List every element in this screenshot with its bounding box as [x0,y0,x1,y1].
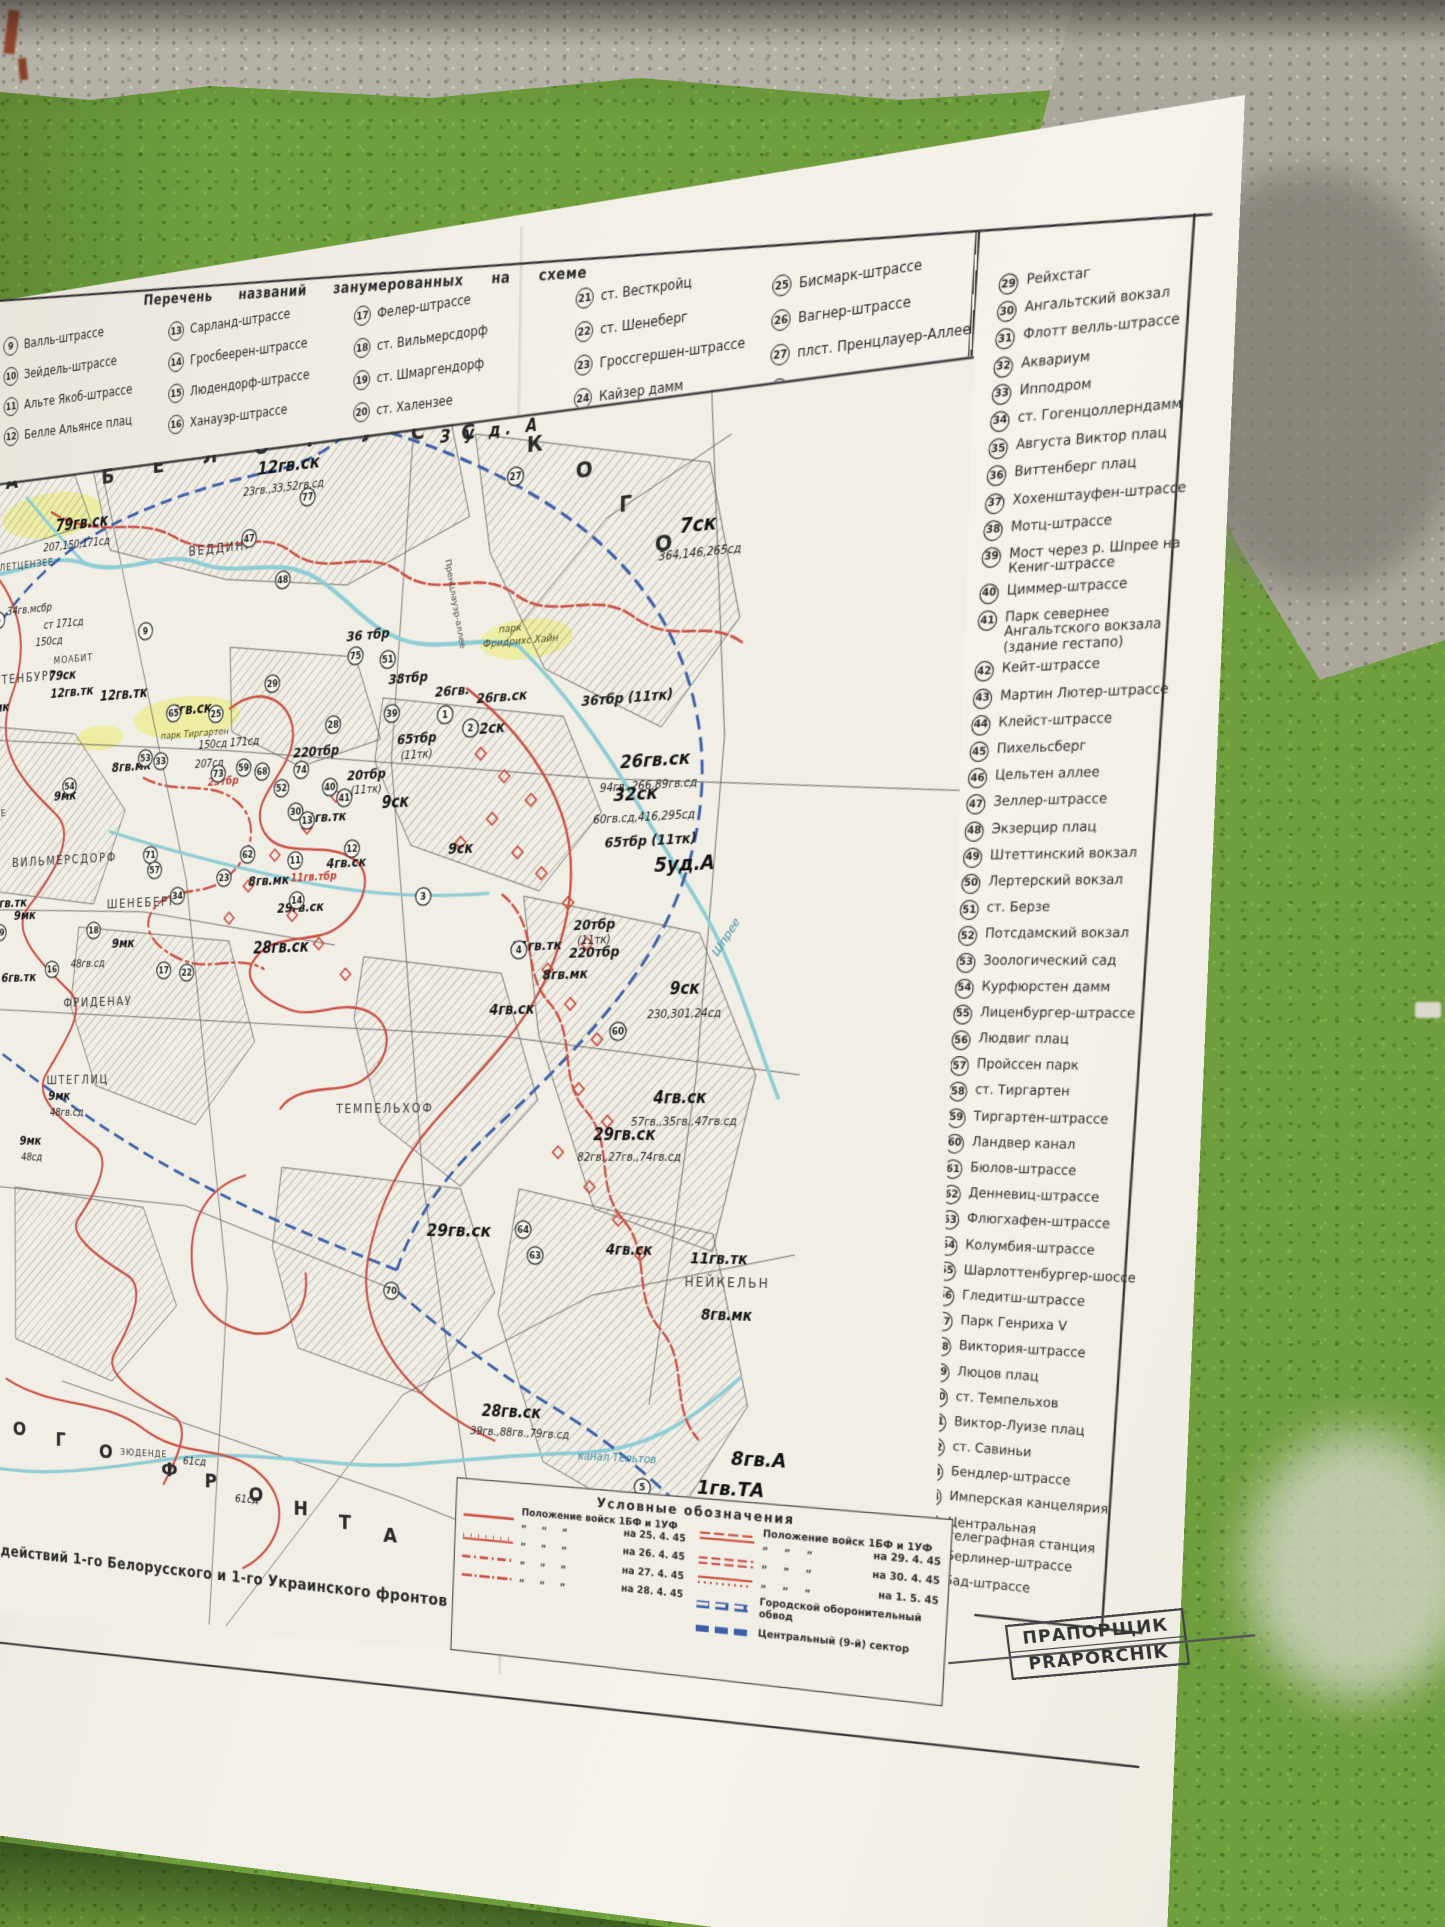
map-label: 28гв.ск [482,1403,542,1423]
map-label: О [13,1417,26,1440]
map-label: Г [56,1428,66,1451]
map-label: 28гв.ск [253,938,309,958]
wall-chip [1415,1002,1441,1018]
map-number-text: 73 [213,768,224,780]
map-number-circle: 13 [300,811,315,829]
index-item-label: ст. Халензее [376,392,453,418]
map-number-text: 77 [302,491,314,504]
index-item: 15Людендорф-штрассе [168,364,309,404]
right-index-label: Люцов плац [957,1364,1039,1384]
right-index-label: Аквариум [1021,348,1091,370]
right-index-item: 43Мартин Лютер-штрассе [972,680,1180,709]
index-item-label: Людендорф-штрассе [190,367,310,399]
map-label: 65тбр [397,729,437,748]
map-label: 26гв. [435,681,470,700]
index-item-label: ст. Шмаргендорф [377,355,485,386]
map-number-circle: 28 [326,715,341,734]
index-item-label: ст. Шенеберг [600,309,688,338]
right-index-label: Штеттинский вокзал [990,845,1138,862]
index-item: 19ст. Шмаргендорф [353,353,484,392]
map-number-text: 65 [168,707,179,719]
map-number-circle: 25 [209,705,223,723]
index-item-label: Фелер-штрассе [377,291,471,321]
right-index-item: 64Колумбия-штрассе [938,1236,1140,1265]
map-number-text: 4 [516,944,522,956]
right-index-label: Шарлоттенбургер-шоссе [963,1262,1136,1285]
right-index-number: 56 [951,1030,971,1050]
map-label: Ф [161,1458,178,1482]
legend-date: на 27. 4. 45 [622,1565,685,1583]
right-index-number: 30 [996,300,1017,323]
map-label: 220тбр [293,742,339,761]
index-item-number: 20 [353,401,370,423]
legend-column-right: Положение войск 1БФ и 1УФ„ „ „на 29. 4. … [695,1524,942,1659]
index-item-number: 26 [771,308,791,332]
right-index-number: 32 [993,355,1014,378]
index-item-label: Сарланд-штрассе [190,306,290,337]
map-number-circle: 68 [255,762,270,780]
legend-line-sample-dashdot [461,1569,511,1583]
right-index-item: 56Людвиг плац [951,1030,1155,1053]
map-label: Б [102,463,115,489]
legend-ditto-marks: „ „ „ [762,1541,820,1558]
right-index-label: Гледитш-штрассе [962,1288,1086,1309]
map-number-text: 59 [238,762,249,774]
index-item-label: Альте Якоб-штрассе [24,382,132,412]
map-number-circle: 74 [294,761,309,780]
map-number-circle: 52 [274,779,289,797]
index-item-number: 17 [354,304,371,327]
map-number-circle: 65 [167,704,181,722]
map-number-text: 68 [257,766,268,778]
map-number-circle: 40 [322,778,337,797]
right-index-number: 35 [988,437,1009,459]
right-index-label: Бендлер-штрассе [951,1464,1071,1488]
right-index-item: 51ст. Берзе [959,898,1165,920]
photo-top-shadow [0,0,1445,46]
index-item-number: 12 [4,426,19,447]
right-index-label: Парк Генриха V [960,1313,1067,1333]
map-number-circle: 16 [45,961,58,978]
index-item-label: Валль-штрассе [24,324,104,351]
map-number-text: 41 [339,792,351,804]
map-number-text: 60 [612,1025,625,1037]
right-index-label: Циммер-штрассе [1006,575,1128,597]
map-label: 9мк [20,1133,43,1148]
index-item-number: 13 [168,320,184,342]
legend-date: на 1. 5. 45 [878,1590,939,1608]
right-index-item: 52Потсдамский вокзал [958,925,1164,946]
right-index-label: Виктор-Луизе плац [954,1414,1085,1438]
index-item: 20ст. Халензее [353,390,453,423]
map-label: 9мк [48,1088,71,1103]
map-label: 20тбр [347,765,386,784]
right-index-label: Ландвер канал [971,1134,1076,1152]
map-sheet: Переченьназванийзанумерованныхнасхеме 9В… [0,95,1245,1927]
index-item-label: Белле Альянсе плац [24,412,132,442]
right-index-label: Цельтен аллее [995,764,1101,782]
map-number-text: 11 [290,854,301,866]
praporchik-stamp: ПРАПОРЩИК PRAPORCHIK [1005,1608,1190,1680]
map-number-circle: 62 [240,846,254,864]
index-item-number: 9 [3,336,18,357]
index-item: 22ст. Шенеберг [575,306,688,343]
index-header-word: названий [238,282,308,304]
index-item-number: 11 [4,396,19,417]
map-number-text: 48 [277,574,288,587]
map-number-circle: 4 [511,941,527,959]
map-number-text: 52 [276,782,287,794]
index-item-label: Бисмарк-штрассе [799,256,923,291]
map-number-text: 33 [155,755,166,767]
map-number-text: 29 [267,678,278,690]
index-item-number: 27 [770,343,790,367]
right-index-item: 42Кейт-штрассе [974,652,1183,682]
map-number-circle: 53 [138,749,152,767]
right-index-label: Ипподром [1019,375,1092,397]
right-index-number: 44 [971,715,991,736]
right-index-item: 63Флюгхафен-штрассе [940,1210,1142,1238]
map-number-circle: 73 [211,765,225,783]
right-index-number: 34 [990,410,1011,433]
right-index-item: 59Тиргартен-штрассе [946,1108,1150,1133]
right-index-label: Пихельсберг [996,738,1087,756]
map-number-text: 12 [346,843,358,855]
right-index-label: Денневиц-штрассе [968,1186,1100,1205]
right-index-label: Зоологический сад [983,952,1117,967]
map-number-text: 30 [290,806,301,818]
map-label: 38тбр [388,668,428,688]
map-number-text: 6 [0,615,1,626]
legend-date: на 26. 4. 45 [622,1547,685,1565]
legend-ditto-marks: „ „ „ [519,1574,572,1591]
right-index-number: 33 [991,383,1012,406]
map-number-circle: 63 [527,1247,543,1265]
right-index-number: 42 [974,661,995,682]
map-number-text: 27 [509,470,521,483]
map-label: 4гв.ск [652,1089,707,1108]
map-label: 220тбр [569,943,620,961]
map-number-text: 25 [210,708,221,720]
map-label: Р [205,1469,218,1493]
legend-line-sample-dash2 [699,1555,754,1570]
legend-ditto-marks: „ „ „ [521,1519,574,1535]
right-index-label: Рейхстаг [1026,264,1091,286]
index-item: 9Валль-штрассе [3,322,104,357]
right-index-item: 60Ландвер канал [945,1133,1148,1159]
map-number-text: 62 [242,849,253,861]
index-item: 25Бисмарк-штрассе [772,254,923,298]
map-number-circle: 18 [87,922,101,939]
map-number-circle: 64 [515,1221,531,1239]
map-label: 48гв.сд [71,958,105,971]
index-item-number: 10 [3,366,18,387]
legend-date: на 28. 4. 45 [621,1584,684,1602]
legend-ditto-marks: „ „ „ [520,1556,573,1573]
index-item: 12Белле Альянсе плац [4,410,132,447]
right-index-label: Зеллер-штрассе [993,791,1108,809]
photo-of-map: Переченьназванийзанумерованныхнасхеме 9В… [0,0,1445,1927]
right-index-item: 57Пройссен парк [949,1056,1153,1080]
index-item-number: 18 [354,337,371,359]
map-number-text: 54 [64,781,74,793]
map-label: 11гв.тбр [291,869,337,885]
map-label: 32ск [613,782,658,806]
right-index-label: Пройссен парк [976,1057,1079,1073]
map-number-circle: 3 [416,887,431,905]
right-index-label: Колумбия-штрассе [965,1237,1095,1257]
legend-line-sample-bluesolid [695,1623,750,1638]
map-label: 9ск [670,979,701,999]
map-number-text: 63 [529,1250,541,1262]
right-index-number: 45 [969,741,989,762]
index-item: 26Вагнер-штрассе [771,291,911,332]
right-index-label: Экзерцир плац [991,818,1097,835]
index-item: 18ст. Вильмерсдорф [354,319,488,359]
map-label: (11тк) [401,748,433,763]
map-number-text: 23 [219,872,230,884]
map-label: 8гв.мк [701,1307,753,1326]
right-index-number: 53 [956,952,976,972]
map-label: ШТЕГЛИЦ [47,1073,109,1088]
legend-line-sample-bluehollow [696,1598,751,1613]
map-label: 4гв.ск [326,854,368,872]
right-index-label: Людвиг плац [978,1031,1069,1047]
legend-column-left: Положение войск 1БФ и 1УФ„ „ „на 25. 4. … [460,1503,686,1632]
map-label: 1мк [0,699,10,716]
map-number-circle: 54 [63,778,77,796]
map-number-circle: 34 [170,887,184,905]
right-index-label: Клейст-штрассе [998,710,1113,729]
right-index-number: 41 [977,610,998,632]
right-index-label: ст. Савиньи [952,1439,1032,1459]
map-number-circle: 22 [180,964,194,981]
legend-date: на 30. 4. 45 [872,1570,940,1589]
map-number-text: 28 [327,719,339,731]
right-index-number: 46 [967,768,987,789]
map-number-text: 1 [442,709,448,721]
map-label: 7ск [679,511,717,540]
map-label: 9ск [448,840,474,859]
map-number-circle: 57 [148,861,162,879]
map-label: 4гв.ск [605,1242,653,1260]
map-number-text: 39 [386,707,398,719]
right-index-label: ст. Темпельхов [955,1389,1059,1410]
right-index-label: Кейт-штрассе [1001,656,1100,676]
map-label: С [411,418,425,446]
right-index-item: 39Мост через р. Шпрее на Кениг-штрассе [980,534,1191,578]
right-index-label: Мост через р. Шпрее на Кениг-штрассе [1008,534,1191,576]
map-label: 9мк [14,907,37,923]
right-index-number: 54 [954,978,974,998]
right-index-item: 47Зеллер-штрассе [966,789,1173,815]
right-index-item: 46Цельтен аллее [967,762,1174,789]
legend-ditto-marks: „ „ „ [520,1537,573,1553]
map-number-text: 13 [301,814,312,826]
map-label: 5уд.А [654,851,715,878]
map-number-circle: 12 [344,839,359,857]
index-item-number: 21 [575,286,593,310]
map-label: О [99,1440,113,1463]
right-index-item: 41Парк севернее Ангальтского вокзала (зд… [976,599,1187,656]
index-item-number: 15 [168,383,184,405]
right-index-number: 47 [966,794,986,815]
right-index-label: Флюгхафен-штрассе [967,1211,1111,1231]
right-index-number: 55 [953,1004,973,1024]
map-label: 9мк [112,935,136,951]
right-index-label: Виттенберг плац [1014,455,1137,480]
map-label: 8гв.мк [248,872,290,890]
map-label: А [383,1523,398,1548]
right-index-label: Лиценбургер-штрассе [980,1005,1136,1021]
map-label: Н [293,1496,308,1520]
right-index-number: 51 [959,900,979,920]
map-number-text: 40 [324,781,335,793]
right-index-item: 58ст. Тиргартен [948,1082,1152,1106]
index-item-label: Зейдель-штрассе [24,353,117,382]
map-number-circle: 59 [236,758,250,776]
right-index-number: 52 [958,926,978,946]
map-number-text: 71 [145,849,156,861]
map-label: 8гв.мк [542,965,589,983]
legend-line-sample-double [700,1531,755,1546]
map-number-circle: 70 [384,1282,399,1299]
index-item-number: 14 [168,351,184,373]
right-index-item: 44Клейст-штрассе [971,707,1179,735]
map-label: 61сд [183,1455,206,1469]
right-index-label: ст. Берзе [986,899,1050,914]
right-index-number: 40 [979,583,1000,605]
map-number-circle: 14 [289,891,304,909]
index-item-number: 16 [168,414,184,435]
map-number-text: 34 [172,890,183,901]
right-index-number: 37 [984,492,1005,514]
map-number-circle: 23 [217,869,231,887]
index-item-number: 19 [353,369,370,391]
index-item: 10Зейдель-штрассе [3,351,116,387]
map-label: НЕЙКЕЛЬН [684,1275,770,1292]
map-number-text: 18 [88,925,98,936]
right-index-item: 50Лертерский вокзал [961,871,1167,894]
right-index-number: 50 [961,874,981,894]
index-item-label: ст. Вильмерсдорф [377,322,488,354]
legend-ditto-marks: „ „ „ [761,1560,819,1577]
right-index-item: 49Штеттинский вокзал [962,844,1169,868]
map-number-text: 9 [143,625,148,637]
index-item-label: Ханауэр-штрассе [190,402,288,431]
map-number-text: 14 [291,895,302,907]
map-number-circle: 60 [610,1022,627,1040]
legend-line-sample-ticks [463,1533,514,1547]
map-label: Г [619,490,632,518]
map-label: ТЕМПЕЛЬХОФ [335,1101,434,1117]
map-number-text: 3 [420,891,426,903]
right-index-label: Парк севернее Ангальтского вокзала (здан… [1003,599,1187,654]
right-index-item: 62Денневиц-штрассе [941,1185,1144,1212]
right-index-number: 48 [964,821,984,842]
map-label: 20тбр [573,915,615,933]
map-label: 82гв.,27гв.,74гв.сд [577,1151,681,1164]
map-label: 48сд [21,1152,42,1164]
map-number-text: 47 [244,532,255,545]
index-item: 21ст. Весткройц [575,271,692,309]
map-number-circle: 17 [157,962,171,979]
right-index-number: 57 [949,1056,969,1076]
map-number-text: 53 [140,752,151,764]
right-index-number: 31 [995,328,1016,351]
map-number-text: 74 [296,764,307,776]
map-number-text: 16 [47,964,57,975]
map-number-text: 22 [181,967,192,978]
right-index-number: 39 [981,546,1002,568]
right-index-item: 45Пихельсберг [969,735,1177,763]
map-number-text: 57 [149,864,160,876]
map-label: 8гв.А [731,1448,787,1474]
right-index-label: Бюлов-штрассе [970,1160,1077,1178]
index-item: 13Сарланд-штрассе [168,304,290,342]
map-label: 11гв.тк [690,1251,748,1269]
index-item-label: ст. Весткройц [601,274,692,304]
index-item-label: Вагнер-штрассе [798,293,911,326]
right-index-number: 49 [962,847,982,867]
index-item: 16Ханауэр-штрассе [168,399,287,435]
map-label: О [575,456,592,485]
index-header-word: схеме [538,263,588,285]
map-number-text: 70 [385,1285,397,1296]
right-index-item: 53Зоологический сад [956,952,1161,973]
map-label: 29гв.ск [593,1126,656,1145]
legend-line-sample-dotline [698,1574,753,1589]
index-item-label: Гросбеерен-штрассе [190,335,308,368]
map-label: Р [306,426,320,453]
map-label: У [359,421,374,449]
map-label: 6гв.тк [1,969,37,985]
map-number-text: 17 [158,965,169,976]
map-number-circle: 11 [288,851,303,869]
legend-line-sample-solid [463,1509,514,1523]
index-item-label: Гроссгершен-штрассе [599,335,745,371]
index-item-number: 23 [574,353,592,376]
right-index-number: 38 [983,519,1004,541]
map-label: 61сд [235,1492,259,1506]
map-number-text: 75 [350,650,362,663]
index-item-number: 25 [772,273,792,297]
right-index-item: 48Экзерцир плац [964,817,1171,842]
index-item-number: 22 [575,320,593,343]
right-index-label: Тиргартен-штрассе [973,1108,1109,1126]
right-index-label: Лертерский вокзал [988,872,1124,889]
map-number-text: 64 [517,1224,529,1235]
legend-line-sample-xdash [462,1551,512,1565]
map-number-circle: 41 [337,789,352,808]
right-index-label: ст. Тиргартен [975,1082,1071,1099]
legend-ditto-marks: „ „ „ [760,1579,818,1596]
map-label: 4гв.ск [488,1001,535,1020]
map-label: 230,301,24сд [647,1007,722,1022]
right-index-number: 29 [998,272,1019,295]
map-label: 9ск [382,793,410,813]
right-index-label: Мартин Лютер-штрассе [1000,680,1169,702]
map-number-circle: 33 [154,752,168,770]
map-label: О [254,433,269,460]
map-label: (11тк) [351,783,382,798]
right-index-item: 61Бюлов-штрассе [943,1159,1146,1186]
map-label: 29гв.ск [427,1220,492,1241]
index-item: 11Альте Якоб-штрассе [4,379,133,417]
right-index-item: 55Лиценбургер-штрассе [953,1004,1158,1026]
map-label: ФРИДЕНАУ [63,994,132,1010]
right-index-number: 58 [948,1082,968,1102]
